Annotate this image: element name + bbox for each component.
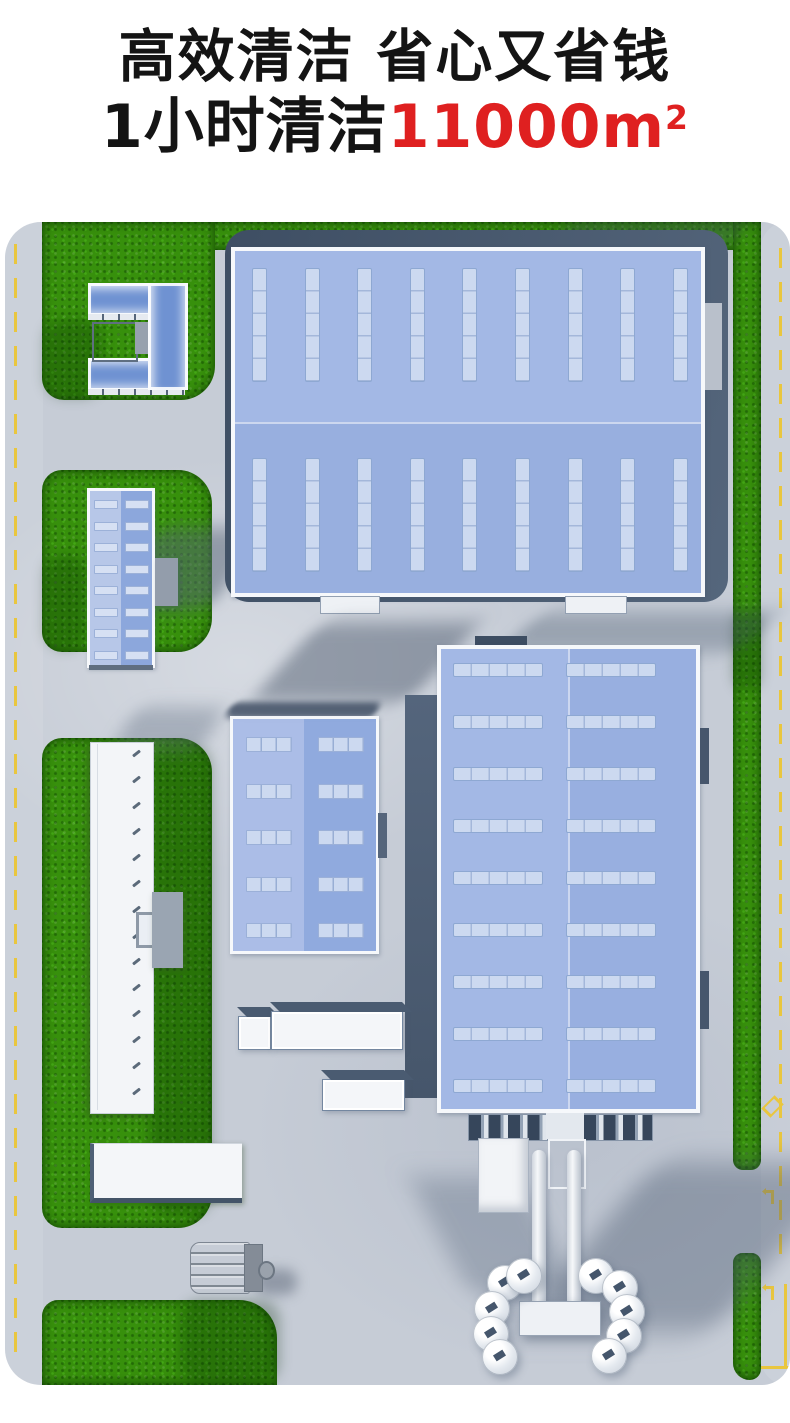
skylight-strip: [453, 819, 543, 833]
grass-right-strip-upper: [733, 222, 761, 1170]
skylight-strip: [453, 1079, 543, 1093]
skylight-strip: [132, 958, 141, 966]
skylight-strip: [132, 1010, 141, 1018]
skylight-strip: [318, 737, 364, 752]
grass-shadow: [180, 1300, 280, 1383]
skylight-strip: [132, 802, 141, 810]
skylight-strip: [453, 975, 543, 989]
truck-trailer: [271, 1011, 403, 1050]
skylight-strip: [566, 923, 656, 937]
blue-building-annex: [155, 558, 178, 606]
skylight-strip: [94, 500, 118, 509]
skylight-strip: [132, 828, 141, 836]
skylight-strip: [125, 522, 149, 531]
skylight-strip: [94, 586, 118, 595]
sweeper-machine-body: [190, 1242, 250, 1294]
conveyor-pipe: [567, 1150, 581, 1312]
skylight-strip: [125, 629, 149, 638]
skylight-strip: [246, 830, 292, 845]
headline-line1: 高效清洁 省心又省钱: [0, 22, 790, 93]
skylight-strip: [566, 819, 656, 833]
skylight-strip: [410, 268, 425, 382]
warehouse-bottom-wall: [405, 695, 438, 1098]
headline-line2: 1小时清洁11000m2: [0, 93, 790, 162]
skylight-strip: [246, 923, 292, 938]
road-marking-edge-line: [784, 1284, 787, 1369]
skylight-strip: [357, 268, 372, 382]
road-marking-turn-arrow: [764, 1286, 776, 1300]
box-truck: [322, 1079, 405, 1111]
skylight-strip: [318, 923, 364, 938]
skylight-strip: [453, 871, 543, 885]
roof-ridge-line: [97, 744, 98, 1110]
loading-canopy: [565, 596, 627, 614]
skylight-strip: [318, 784, 364, 799]
long-building-annex: [152, 892, 183, 968]
skylight-strip: [125, 586, 149, 595]
skylight-strip: [566, 1079, 656, 1093]
loading-canopy: [320, 596, 380, 614]
warehouse-top-annex: [705, 303, 722, 390]
skylight-array: [566, 663, 658, 1097]
skylight-strip: [246, 877, 292, 892]
skylight-strip: [125, 608, 149, 617]
skylight-strip: [673, 268, 688, 382]
skylight-strip: [453, 663, 543, 677]
skylight-strip: [94, 565, 118, 574]
loading-dock-row: [583, 1114, 653, 1141]
skylight-strip: [132, 1088, 141, 1096]
page: 高效清洁 省心又省钱 1小时清洁11000m2: [0, 0, 790, 1423]
office-building-east: [148, 283, 188, 390]
headline-superscript: 2: [665, 98, 689, 137]
skylight-strip: [462, 268, 477, 382]
skylight-strip: [305, 458, 320, 572]
skylight-strip: [566, 871, 656, 885]
skylight-strip: [566, 975, 656, 989]
skylight-strip: [132, 1062, 141, 1070]
skylight-strip: [246, 737, 292, 752]
header: 高效清洁 省心又省钱 1小时清洁11000m2: [0, 22, 790, 162]
blue-building-base: [89, 665, 153, 670]
courtyard-connector: [135, 322, 148, 354]
white-flat-building: [90, 1143, 242, 1203]
skylight-strip: [568, 458, 583, 572]
skylight-array: [318, 737, 362, 937]
skylight-strip: [94, 522, 118, 531]
skylight-strip: [453, 767, 543, 781]
mid-warehouse-annex: [378, 813, 387, 858]
grass-shadow: [44, 555, 86, 650]
skylight-strip: [462, 458, 477, 572]
skylight-strip: [566, 715, 656, 729]
skylight-strip: [566, 1027, 656, 1041]
skylight-strip: [94, 629, 118, 638]
skylight-array: [453, 663, 545, 1097]
left-road-dash-line: [14, 244, 17, 1364]
skylight-strip: [453, 715, 543, 729]
skylight-strip: [515, 268, 530, 382]
skylight-array: [246, 737, 290, 937]
headline-highlight: 11000m2: [388, 93, 689, 162]
skylight-strip: [566, 663, 656, 677]
skylight-strip: [94, 608, 118, 617]
skylight-strip: [305, 268, 320, 382]
skylight-strip: [620, 268, 635, 382]
skylight-strip: [410, 458, 425, 572]
skylight-array: [125, 500, 149, 668]
truck-cab: [238, 1016, 271, 1050]
warehouse-bottom-sidetab: [700, 728, 709, 784]
loading-dock-row: [468, 1114, 548, 1141]
skylight-array: [252, 268, 704, 380]
sweeper-brush-wheel: [258, 1261, 275, 1280]
skylight-strip: [94, 543, 118, 552]
skylight-strip: [132, 776, 141, 784]
industrial-park-scene: [5, 222, 790, 1385]
warehouse-bottom-sidetab: [700, 971, 709, 1029]
skylight-strip: [673, 458, 688, 572]
skylight-strip: [125, 651, 149, 660]
skylight-strip: [568, 268, 583, 382]
silo-base: [519, 1301, 601, 1336]
skylight-strip: [620, 458, 635, 572]
courtyard: [92, 322, 138, 362]
skylight-strip: [357, 458, 372, 572]
skylight-strip: [125, 543, 149, 552]
skylight-strip: [566, 767, 656, 781]
silo-tank: [591, 1338, 627, 1374]
skylight-array: [94, 500, 118, 668]
skylight-strip: [252, 458, 267, 572]
skylight-strip: [453, 1027, 543, 1041]
silo-tank: [506, 1258, 542, 1294]
skylight-strip: [125, 500, 149, 509]
skylight-strip: [132, 854, 141, 862]
skylight-strip: [318, 830, 364, 845]
skylight-array: [252, 458, 704, 570]
silo-tank: [482, 1339, 518, 1375]
skylight-strip: [515, 458, 530, 572]
storage-container: [478, 1138, 529, 1213]
skylight-strip: [132, 984, 141, 992]
skylight-strip: [318, 877, 364, 892]
skylight-strip: [132, 1036, 141, 1044]
skylight-strip: [125, 565, 149, 574]
skylight-strip: [246, 784, 292, 799]
skylight-strip: [453, 923, 543, 937]
skylight-strip: [132, 880, 141, 888]
skylight-strip: [94, 651, 118, 660]
left-road: [5, 222, 43, 1385]
skylight-strip: [252, 268, 267, 382]
headline-line2-black: 1小时清洁: [101, 92, 388, 162]
dock-gap: [546, 1113, 584, 1139]
